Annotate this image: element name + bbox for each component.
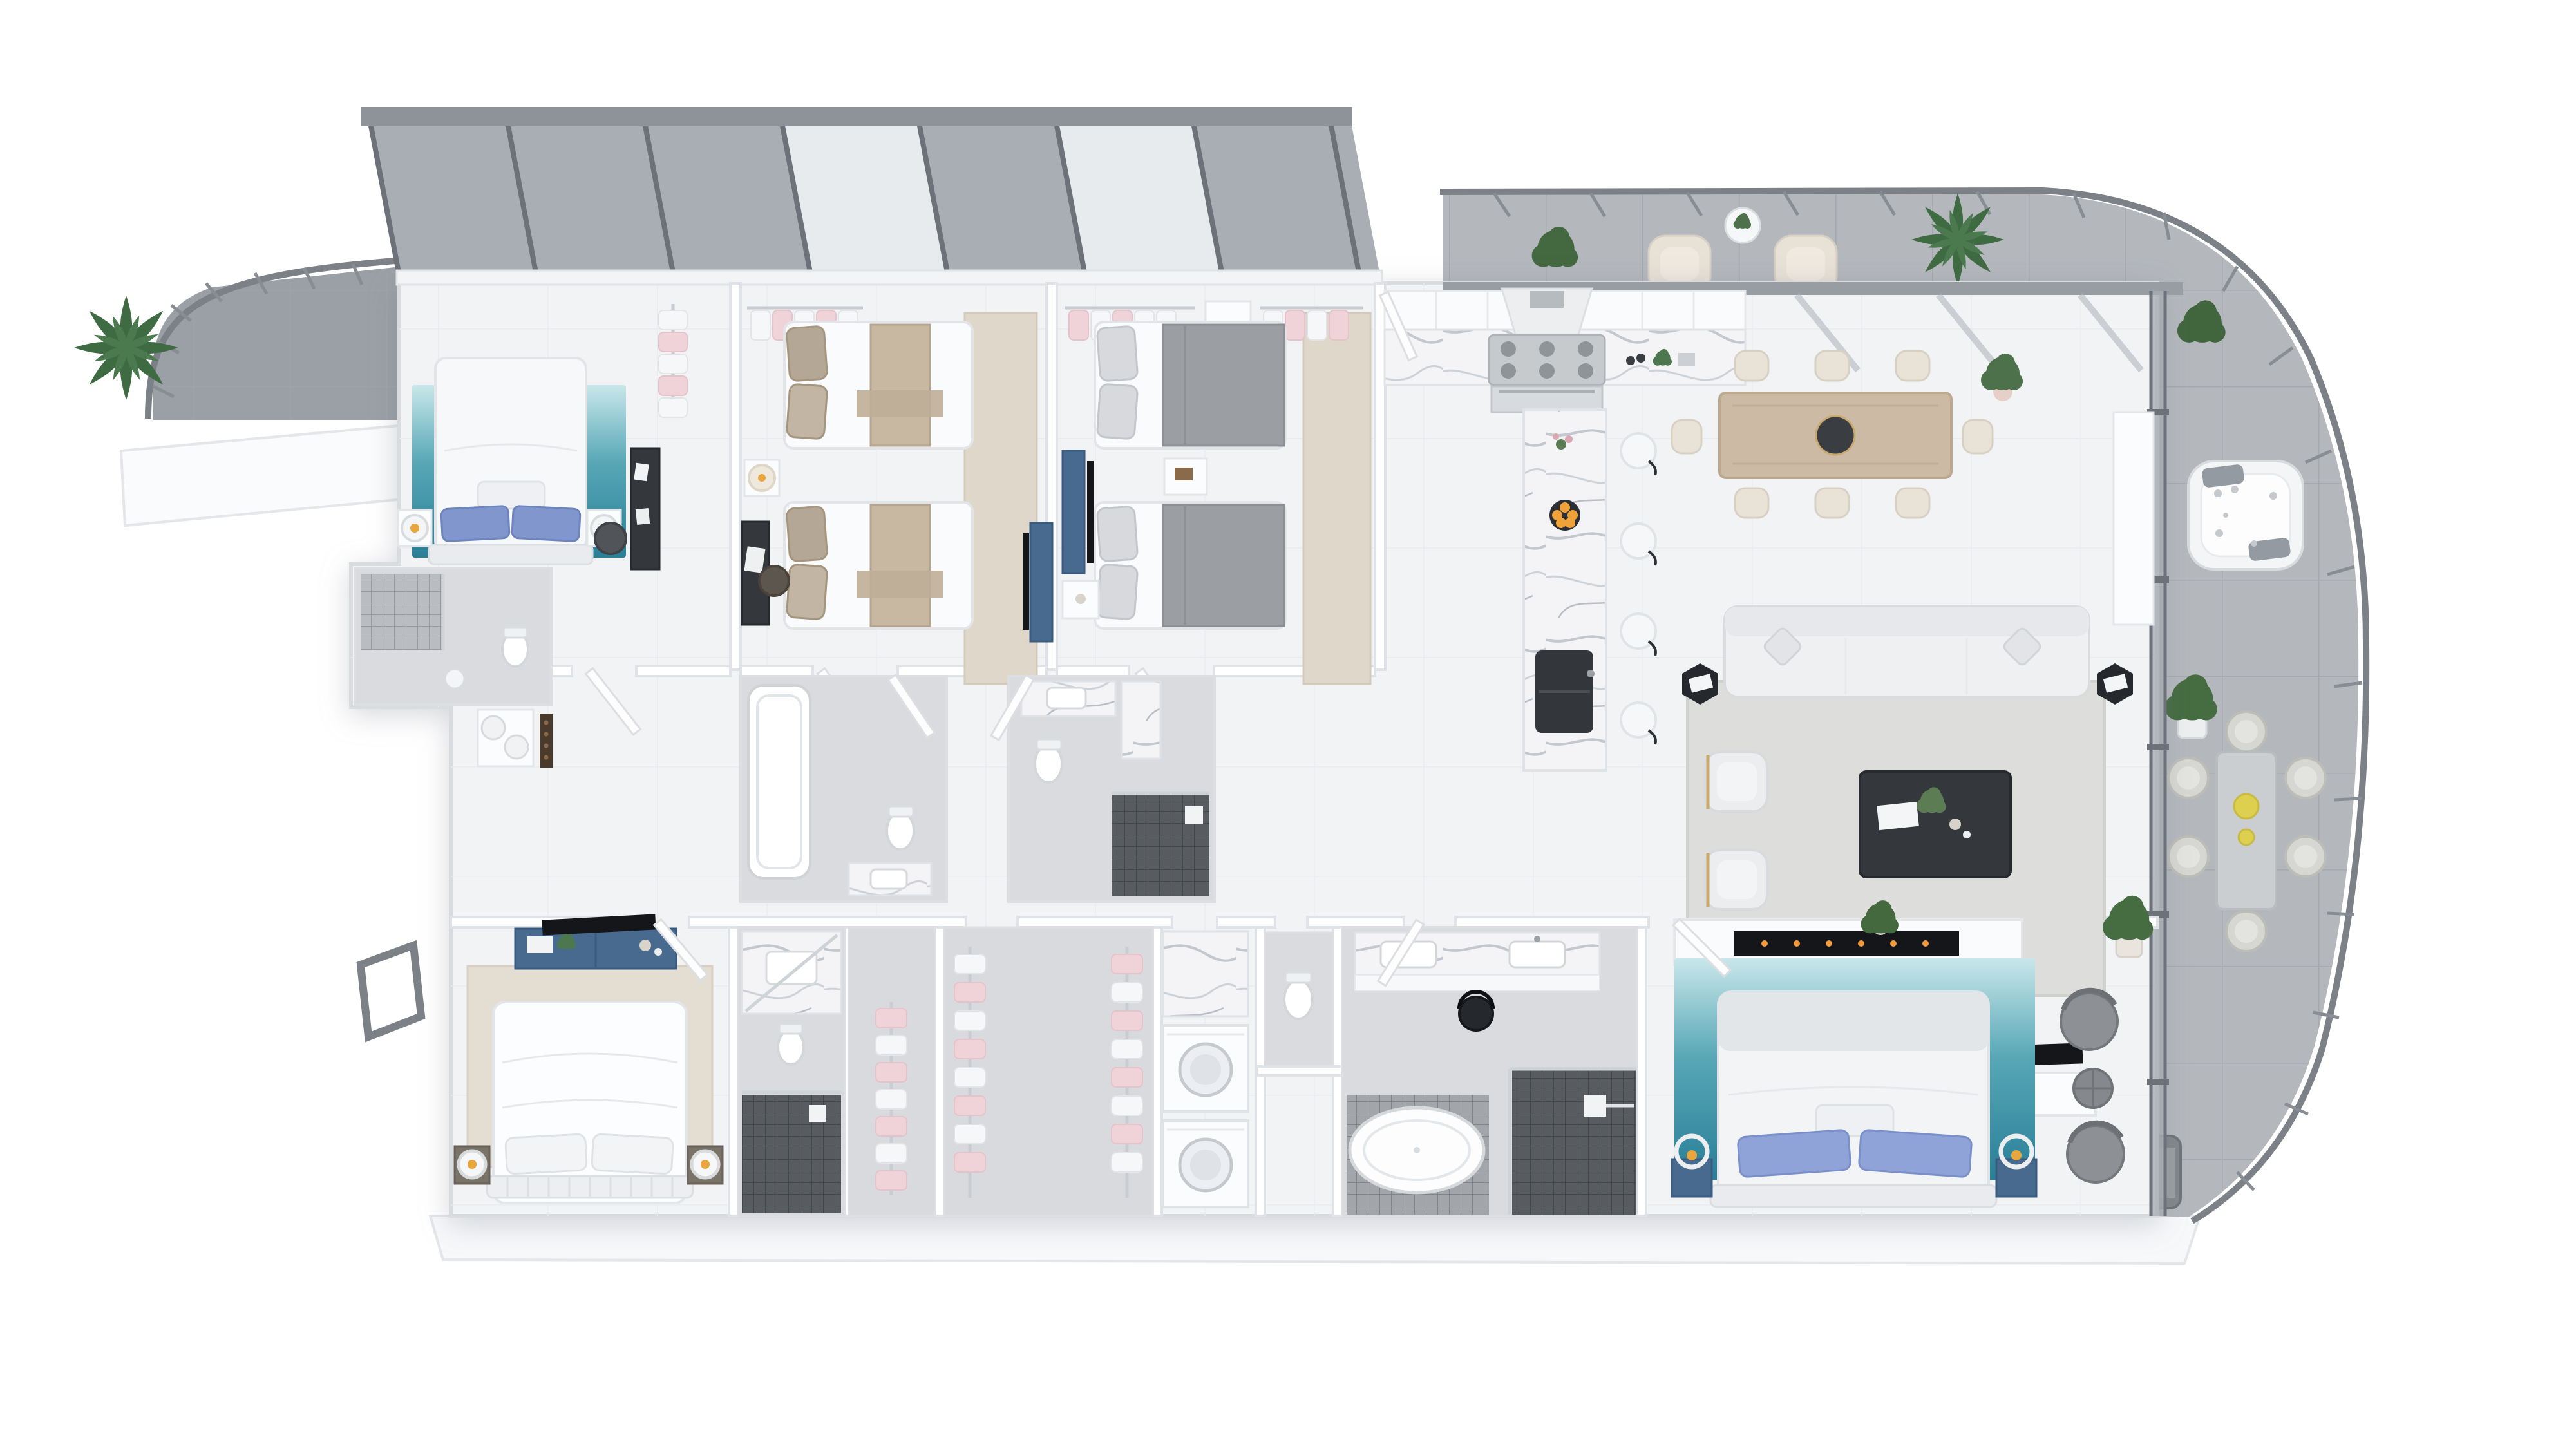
nightstand [1063,581,1099,618]
ball-lamp [459,1151,486,1178]
tv [1023,533,1029,630]
wall [729,927,738,1216]
walk-in-shower [1112,793,1209,896]
gas-cooktop [1489,335,1605,385]
wall [935,927,944,1216]
bed-pillow [1097,506,1138,562]
pouf [2074,1069,2112,1108]
marble-column [1122,681,1160,759]
swivel-chair [2061,990,2117,1050]
tv [1087,461,1094,563]
double-bed [1710,992,1996,1207]
wall [741,666,813,676]
dining-chair [1815,351,1849,381]
outdoor-chair [2286,758,2325,798]
wall [636,666,730,676]
vanity [1021,681,1115,716]
wall [1018,917,1172,927]
bed-pillow [592,1134,674,1174]
book [1175,468,1193,480]
yellow-plate [2239,829,2254,845]
laptop [744,546,765,573]
dining-chair [1896,488,1929,518]
desk-chair [595,523,626,554]
vase [654,948,662,956]
wall [1057,666,1129,676]
terrace-palm-plant [74,296,178,400]
dining-chair [1815,488,1849,518]
hood-vent [1530,291,1564,308]
dryer [1163,1121,1248,1207]
wall [1637,927,1646,1216]
outdoor-chair [2168,758,2208,798]
outdoor-chair [2226,712,2266,752]
wall [1217,917,1275,927]
double-bed [487,1002,693,1203]
bed-pillow [506,1134,587,1174]
ball-lamp [692,1151,719,1178]
freestanding-tub [1350,1108,1484,1193]
media-console-navy [1063,451,1094,573]
books [527,936,553,953]
floorplan-render [0,0,2576,1449]
window-side-cabinet [2114,412,2154,625]
single-bed [784,322,972,448]
dining-chair [1896,351,1929,381]
floorplan-svg [0,0,2576,1449]
hanging-clothes [659,376,687,395]
double-bed [429,358,592,564]
toilet [1035,739,1062,782]
dining-chair [1963,420,1993,453]
desk [631,448,659,569]
ball-lamp [402,515,428,541]
bed-pillow [786,326,828,381]
bed-pillow-periwinkle [1738,1130,1851,1177]
blanket [871,325,930,446]
glass-cap-rail [361,107,1352,126]
wine-rack [540,714,553,768]
toilet [778,1024,804,1065]
hanging-clothes [659,332,687,352]
sink [871,869,907,889]
wall [1307,917,1404,927]
bedroom-wing-glazing [361,107,1382,285]
hanging-clothes [1307,310,1327,340]
dining-chair [1735,351,1768,381]
walk-in-shower [1510,1069,1636,1215]
coffee-table [1860,772,2011,877]
bedroom-top-wall [397,270,1382,285]
dining-table [1719,393,1951,478]
bottom-plinth [430,1216,2200,1264]
juliet-balcony-frame [361,945,421,1037]
hanging-clothes [751,310,770,340]
wall [1455,917,1649,927]
plinth-slab [430,1216,2200,1264]
toilet [1284,972,1312,1019]
yellow-plate [2234,794,2259,819]
vase [1963,831,1971,838]
blanket [1163,325,1284,446]
bed-pillow [786,564,828,620]
blanket-fold [857,390,943,417]
pedestal-sink [445,669,464,688]
faucet [1534,936,1540,942]
bed-pillow [786,384,828,439]
hanging-clothes [1329,310,1349,340]
bed-pillow-blue [441,506,509,541]
walk-in-closet [944,927,1153,1216]
kitchen-island [1524,410,1606,770]
wall [689,917,966,927]
vase [1949,819,1961,830]
sofa [1725,607,2089,697]
balcony-side-table [1725,208,1760,243]
bed-pillow-blue [512,506,580,541]
single-bed [1095,322,1285,448]
mosaic-shower [742,1092,841,1213]
bed-pillow [478,482,545,509]
single-bed [784,502,972,629]
headboard [429,545,592,564]
bed-pillow [786,506,828,562]
accent-armchair [1705,752,1767,811]
runner-rug [1303,313,1370,684]
bed-pillow [1097,326,1138,381]
hanging-clothes [1285,310,1305,340]
marble-cabinet [1163,931,1248,1016]
single-bed [1095,502,1285,629]
balcony-palm-plant [1911,193,2004,286]
wall [1153,927,1162,1216]
bathtub [748,685,810,878]
vanity-chair [1459,992,1493,1030]
nightstand [1164,459,1207,495]
closet-rail [659,304,687,417]
closet-strip [849,927,935,1216]
media-console-navy [1023,523,1052,641]
shower-head [1584,1095,1606,1117]
vase [639,940,651,951]
swivel-chair [2067,1123,2124,1182]
jacuzzi [2188,461,2303,569]
bed-pillow [1097,384,1138,439]
dining-chair [1735,488,1768,518]
bed-pillow-periwinkle [1859,1130,1972,1177]
marble-shower [742,931,841,1014]
vanity [849,863,931,895]
toilet [887,806,914,849]
hanging-clothes [1069,310,1088,340]
washing-machine [1163,1025,1248,1112]
media-wall [1674,920,2022,965]
wall [1257,1066,1343,1075]
hanging-clothes [659,310,687,330]
bed-fold [1718,992,1989,1051]
laundry [1163,931,1248,1207]
blanket [1163,505,1284,626]
powder-room [1257,933,1343,1075]
drum-lamp [749,465,775,491]
sink [1510,942,1565,967]
shower-head [809,1105,826,1122]
hanging-clothes [659,354,687,374]
sink [1047,688,1086,708]
headboard [1710,1185,1996,1207]
wall [730,283,741,670]
outdoor-chair [2226,911,2266,951]
fruit-bowl [1549,500,1580,531]
desk-chair [759,566,789,596]
shower-head [1185,806,1203,824]
entry-canopy-slab [121,424,424,526]
bathroom-mid-right [991,676,1215,902]
hanging-clothes-column [876,1009,907,1190]
terrace-tiles [153,265,422,420]
ensuite-master-left [738,927,845,1216]
master-bathroom [1342,920,1637,1216]
dining-chair [1672,420,1701,453]
top-left-terrace [74,259,424,526]
coffee-table-books [1877,802,1919,830]
blanket-fold [857,571,943,598]
blanket [871,505,930,626]
utility-cabinet [478,710,533,766]
outdoor-chair [2168,837,2208,876]
faucet [1587,670,1595,677]
accent-armchair [1705,850,1767,909]
bed-pillow [1097,564,1138,620]
toilet [502,627,528,667]
outdoor-chair [2286,837,2325,876]
shower [361,574,443,650]
bathroom-mid-left [741,675,947,902]
hanging-clothes [659,398,687,417]
